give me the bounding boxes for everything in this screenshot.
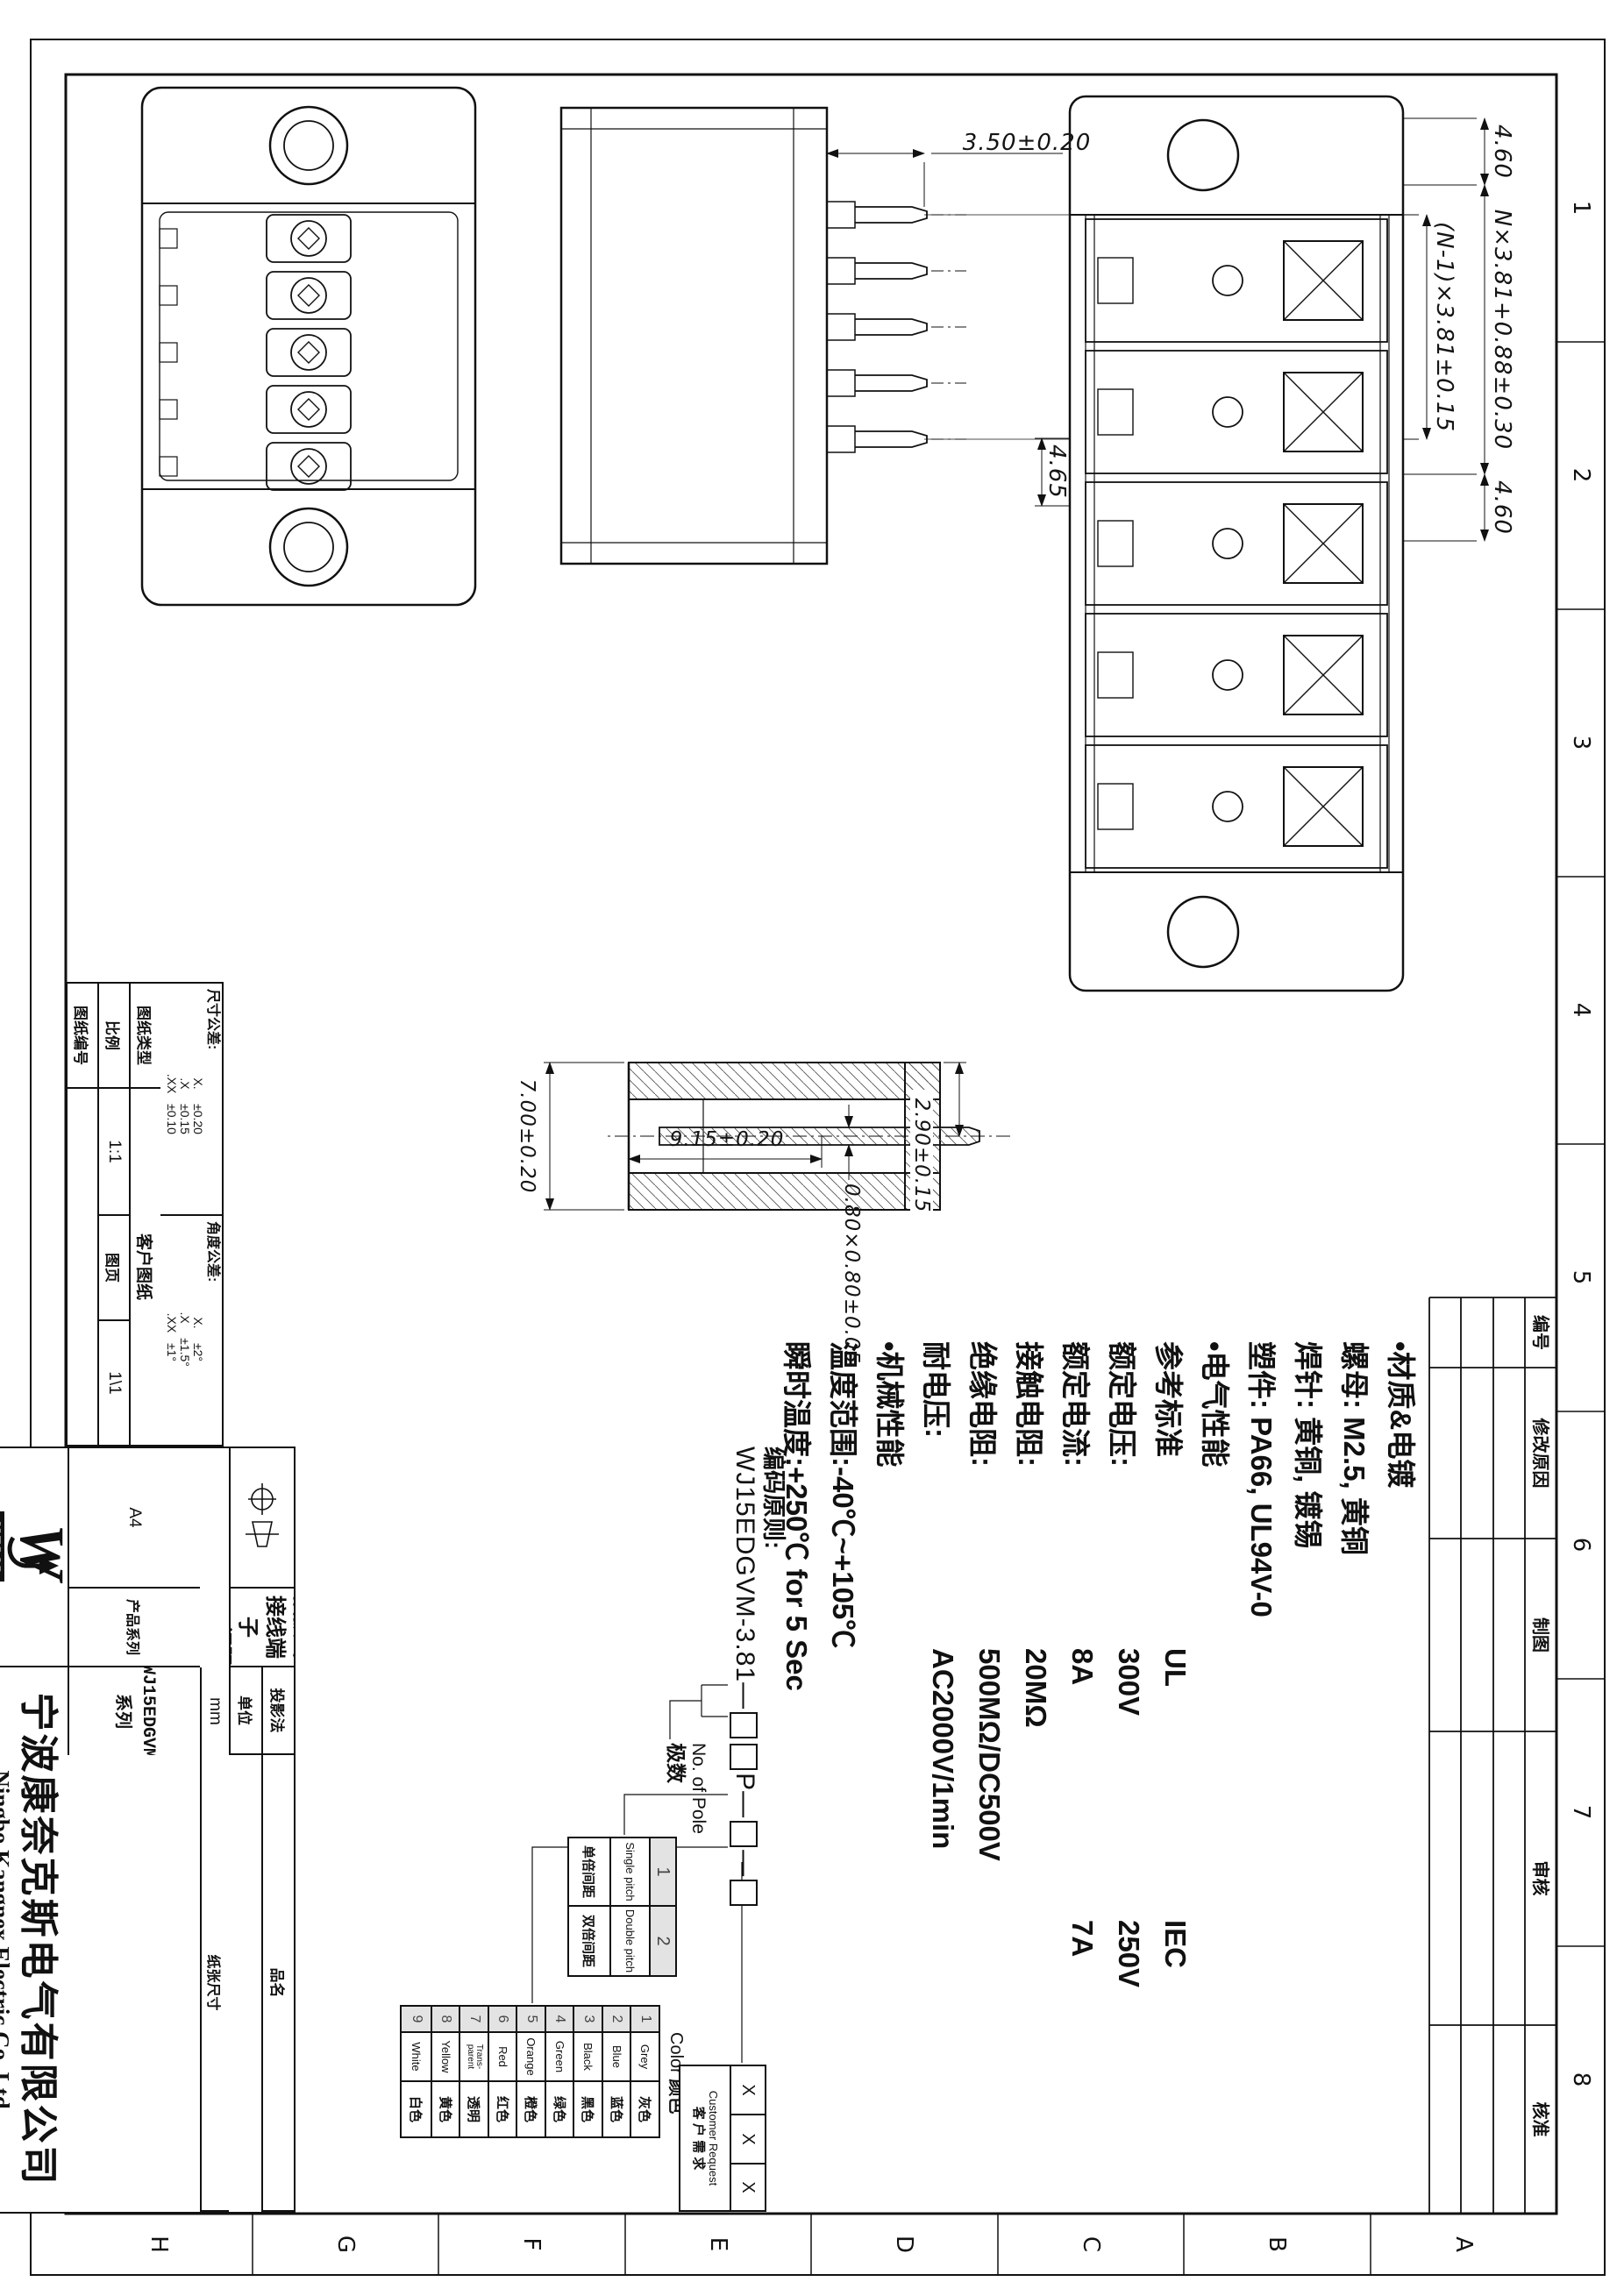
pitch-option-2-en: Double pitch [609,1907,649,1975]
logo-arrow-icon [0,1504,68,1610]
color-code-table: 1Grey灰色 2Blue蓝色 3Black黑色 4Green绿色 5Orang… [401,2005,661,2138]
color-9-cn: 白色 [402,2082,431,2136]
code-box-pole-tens [730,1712,758,1738]
color-7-cn: 透明 [459,2082,488,2136]
spec-text: 参考标准 [1152,1341,1185,1457]
spec-voltage: 额定电压:300V250V [1110,1341,1145,2227]
customer-request-box: X X X Customer Request 客 户 需 求 [679,2065,766,2212]
spec-text: 温度范围:-40℃~+105℃ [827,1341,859,1648]
grid-number-8: 8 [1568,2062,1594,2097]
pitch-option-1-cn: 单倍间距 [569,1838,609,1907]
tol-sym: X. [191,1063,204,1104]
spec-value-iec: IEC [1158,1920,1192,1968]
code-box-pole-units [730,1744,758,1770]
customer-x1: X [730,2066,765,2115]
series-label: 产品系列 [68,1589,200,1667]
ordering-code-text: WJ15EDGVM-3.81— [730,1447,759,1710]
spec-value: 500MΩ/DC500V [972,1648,1006,1861]
ordering-code-line: WJ15EDGVM-3.81—P—— [730,1447,759,1909]
paper-size-value: A4 [68,1448,200,1589]
color-1-cn: 灰色 [630,2082,659,2136]
code-box-color [730,1880,758,1906]
spec-nut: 螺母: M2.5, 黄铜 [1343,1341,1378,2227]
revision-col-drawn: 制图 [1525,1539,1555,1731]
grid-letter-A: A [1450,2224,1477,2264]
spec-section-material: •材质&电镀 [1389,1341,1424,2227]
grid-letter-B: B [1264,2224,1290,2264]
customer-request-cn: 客 户 需 求 [690,2107,707,2171]
grid-letter-D: D [891,2224,917,2264]
spec-text: 额定电流: [1059,1341,1092,1467]
grid-number-3: 3 [1568,725,1594,760]
tol-row: .X±1.5° [178,1297,191,1367]
revision-col-reason: 修改原因 [1525,1368,1555,1539]
spec-temp-range: 温度范围:-40℃~+105℃ [831,1341,866,2227]
grid-letter-G: G [332,2224,359,2264]
dim-pin-length: 3.50±0.20 [917,130,1136,156]
spec-value: 20MΩ [1019,1648,1052,1728]
first-angle-projection-icon [231,1480,293,1555]
tol-row: X.±2° [191,1303,204,1361]
company-name-en: Ningbo Kangnex Electric Co.,Ltd [0,1770,14,2108]
dim-pitch-total: N×3.81+0.88±0.30 [1489,185,1515,474]
revision-col-approved: 核准 [1525,2025,1555,2214]
tol-sym: X. [191,1303,204,1343]
title-block: 投影法 品名 插拔式接线端子 3.81间距 单位 mm 纸张尺寸 A4 产品系列… [0,1447,296,2214]
spec-text: •机械性能 [873,1341,906,1468]
angle-tolerance-title: 角度公差: [204,1216,220,1282]
tolerance-table: 尺寸公差: X.±0.20 .X±0.15 .XX±0.10 角度公差: X.±… [157,982,224,1447]
spec-section-electrical: •电气性能 [1203,1341,1238,2227]
color-5-en: Orange [516,2033,545,2082]
color-6-en: Red [488,2033,516,2082]
screenshot-viewport: 1 2 3 4 5 6 7 8 A B C D E F G H 编号 修改原因 … [0,0,1624,2296]
color-4-cn: 绿色 [545,2082,573,2136]
color-3-cn: 黑色 [573,2082,602,2136]
tol-val: ±1° [165,1343,179,1361]
product-name-line1: 插拔式接线端子 [234,1589,294,1666]
grid-letter-H: H [146,2224,172,2264]
color-8-cn: 黄色 [431,2082,459,2136]
color-4-no: 4 [545,2007,573,2033]
spec-section-mechanical: •机械性能 [878,1341,913,2227]
company-logo-cell: W NZWJ [0,1448,68,1667]
product-name-label: 品名 [261,1755,294,2212]
color-1-no: 1 [630,2007,659,2033]
drawing-number-value [68,1089,97,1445]
tol-row: .XX±0.10 [164,1063,177,1134]
company-name-cn: 宁波康奈克斯电气有限公司 [14,1693,61,2187]
spec-text: 焊针: 黄铜, 镀锡 [1292,1341,1324,1549]
pole-count-label: No. of Pole 极数 [664,1743,709,1834]
code-dash-1: — [730,1791,759,1818]
product-name-line2: 3.81间距 [229,1589,234,1666]
revision-col-checked: 审核 [1525,1731,1555,2025]
color-2-cn: 蓝色 [602,2082,630,2136]
pitch-option-table: 1 2 Single pitch Double pitch 单倍间距 双倍间距 [567,1837,677,1977]
color-1-en: Grey [630,2033,659,2082]
tol-val: ±2° [191,1343,205,1361]
customer-request-en: Customer Request [706,2091,720,2186]
tol-val: ±1.5° [178,1338,192,1367]
drawing-type-value: 客户图纸 [129,1089,160,1445]
tol-sym: .XX [164,1303,177,1343]
spec-insulation-resistance: 绝缘电阻:500MΩ/DC500V [971,1341,1006,2227]
pitch-option-1-en: Single pitch [609,1838,649,1907]
grid-number-1: 1 [1568,190,1594,225]
ordering-title: 编码原则: [759,1447,793,1549]
color-6-no: 6 [488,2007,516,2033]
grid-number-7: 7 [1568,1795,1594,1830]
spec-current: 额定电流:8A7A [1064,1341,1099,2227]
projection-label: 投影法 [261,1667,294,1755]
pitch-option-2-no: 2 [649,1907,675,1975]
grid-number-4: 4 [1568,992,1594,1027]
customer-x2: X [730,2115,765,2164]
tol-val: ±0.15 [178,1104,192,1134]
color-9-no: 9 [402,2007,431,2033]
dim-460-right: 4.60 [1489,474,1515,541]
dim-pitch-span: (N-1)×3.81±0.15 [1431,215,1457,439]
spec-text: 耐电压: [920,1341,952,1438]
code-dash-2: — [730,1850,759,1877]
dimension-tolerance-cell: 尺寸公差: X.±0.20 .X±0.15 .XX±0.10 [159,984,222,1216]
angle-tolerance-cell: 角度公差: X.±2° .X±1.5° .XX±1° [159,1216,222,1448]
pole-count-label-en: No. of Pole [687,1743,709,1834]
color-7-no: 7 [459,2007,488,2033]
page-label: 图页 [97,1216,129,1321]
dim-700: 7.00±0.20 [516,1063,538,1210]
spec-text: 塑件: PA66, UL94V-0 [1245,1341,1278,1617]
drawing-info-table: 图纸类型 客户图纸 比例 1:1 图页 1\1 图纸编号 [66,982,160,1447]
color-7-en: Trans-parent [459,2033,488,2082]
grid-number-6: 6 [1568,1527,1594,1562]
grid-letter-E: E [705,2224,731,2264]
dimension-tolerance-title: 尺寸公差: [204,984,220,1049]
spec-withstand-voltage: 耐电压:AC2000V/1min [924,1341,959,2227]
scale-label: 比例 [97,984,129,1089]
unit-value: mm [200,1667,229,1755]
spec-pin: 焊针: 黄铜, 镀锡 [1296,1341,1331,2227]
spec-contact-resistance: 接触电阻:20MΩ [1017,1341,1052,2227]
grid-number-5: 5 [1568,1260,1594,1295]
grid-letter-F: F [518,2224,545,2264]
color-3-no: 3 [573,2007,602,2033]
tol-val: ±0.10 [165,1104,179,1134]
customer-x3: X [730,2164,765,2210]
dim-290: 2.90±0.15 [910,1090,933,1221]
unit-label: 单位 [229,1667,261,1755]
spec-plastic: 塑件: PA66, UL94V-0 [1250,1341,1285,2227]
grid-letter-C: C [1078,2224,1104,2264]
pitch-option-1-no: 1 [649,1838,675,1907]
tol-row: .X±0.15 [178,1063,191,1134]
color-8-en: Yellow [431,2033,459,2082]
pole-count-label-cn: 极数 [664,1743,687,1834]
color-6-cn: 红色 [488,2082,516,2136]
dim-460-left: 4.60 [1489,118,1515,185]
spec-text: 绝缘电阻: [966,1341,999,1467]
projection-symbol-cell [229,1448,294,1589]
dim-915: 9.15±0.20 [630,1128,823,1151]
color-9-en: White [402,2033,431,2082]
spec-text: 额定电压: [1106,1341,1138,1467]
tol-sym: .XX [164,1063,177,1104]
customer-request-label: Customer Request 客 户 需 求 [680,2066,730,2210]
product-name-value: 插拔式接线端子 3.81间距 [229,1589,294,1667]
pitch-option-2-cn: 双倍间距 [569,1907,609,1975]
spec-value: 8A [1065,1648,1099,1685]
dim-465: 4.65 [1043,437,1070,507]
revision-col-number: 编号 [1525,1297,1555,1368]
spec-value-ul: UL [1158,1648,1192,1687]
page-value: 1\1 [97,1321,129,1445]
company-logo: W NZWJ [0,1504,68,1610]
tol-row: X.±0.20 [191,1063,204,1134]
spec-text: 接触电阻: [1013,1341,1045,1467]
color-2-en: Blue [602,2033,630,2082]
company-name-cell: 宁波康奈克斯电气有限公司 Ningbo Kangnex Electric Co.… [0,1667,68,2212]
spec-value: 250V [1112,1920,1145,1987]
color-5-no: 5 [516,2007,545,2033]
spec-standard: 参考标准ULIEC [1157,1341,1192,2227]
spec-value: 300V [1112,1648,1145,1716]
spec-value: AC2000V/1min [926,1648,959,1849]
drawing-type-label: 图纸类型 [129,984,160,1089]
code-box-pitch [730,1821,758,1847]
color-3-en: Black [573,2033,602,2082]
paper-size-label: 纸张尺寸 [200,1755,229,2212]
logo-box-text: NZWJ [0,1511,4,1582]
tol-sym: .X [178,1063,191,1104]
color-5-cn: 橙色 [516,2082,545,2136]
scale-value: 1:1 [97,1089,129,1216]
grid-number-2: 2 [1568,458,1594,493]
color-4-en: Green [545,2033,573,2082]
spec-text: •电气性能 [1199,1341,1231,1468]
tol-val: ±0.20 [191,1104,205,1134]
color-2-no: 2 [602,2007,630,2033]
ordering-code-p: P [730,1773,759,1791]
color-8-no: 8 [431,2007,459,2033]
spec-text: •材质&电镀 [1385,1341,1417,1488]
tol-sym: .X [178,1297,191,1338]
series-value: WJ15EDGVM 系列 [68,1667,200,1755]
tol-row: .XX±1° [164,1303,177,1361]
spec-value: 7A [1065,1920,1099,1957]
spec-text: 螺母: M2.5, 黄铜 [1338,1341,1371,1555]
drawing-sheet: 1 2 3 4 5 6 7 8 A B C D E F G H 编号 修改原因 … [0,0,1624,2296]
drawing-number-label: 图纸编号 [68,984,97,1089]
